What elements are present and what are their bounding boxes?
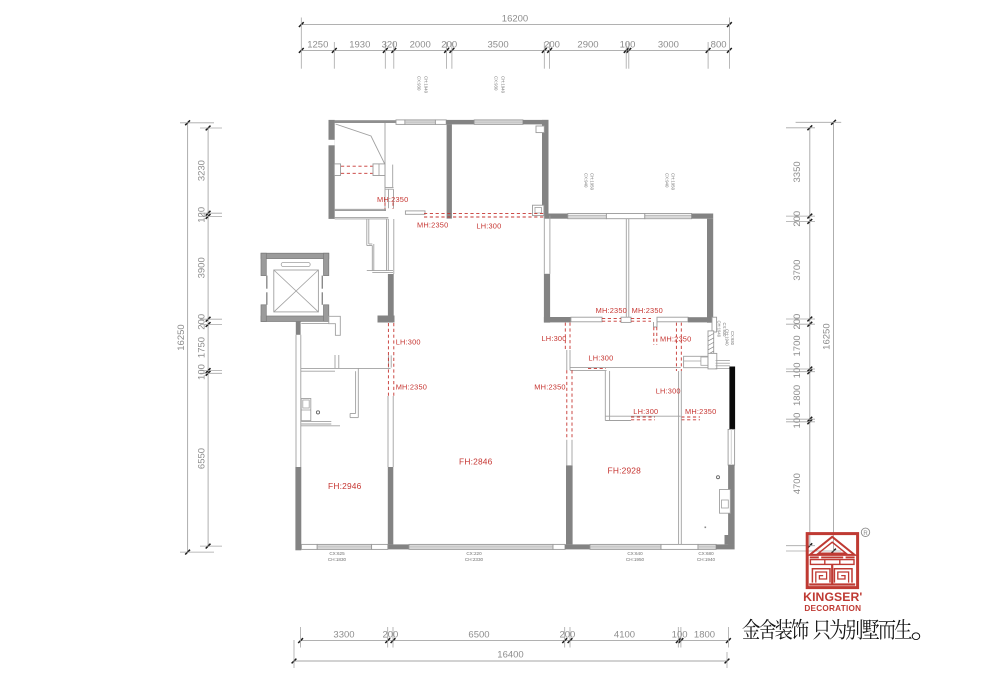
svg-text:200: 200: [792, 314, 803, 330]
svg-text:3300: 3300: [333, 629, 354, 640]
svg-text:FH:2928: FH:2928: [608, 466, 642, 476]
svg-text:CH:1940: CH:1940: [501, 76, 506, 94]
svg-text:LH:300: LH:300: [656, 387, 681, 396]
svg-text:CH:1830: CH:1830: [328, 557, 347, 562]
svg-text:CX:930: CX:930: [494, 76, 499, 91]
svg-text:CH:1950: CH:1950: [626, 557, 645, 562]
svg-text:FH:2946: FH:2946: [328, 481, 362, 491]
svg-text:3000: 3000: [658, 39, 679, 50]
svg-text:DECORATION: DECORATION: [804, 604, 861, 613]
svg-text:1700: 1700: [792, 335, 803, 356]
svg-text:MH:2350: MH:2350: [377, 195, 408, 204]
svg-text:200: 200: [559, 629, 575, 640]
svg-text:200: 200: [196, 314, 207, 330]
svg-text:800: 800: [711, 39, 727, 50]
svg-text:1800: 1800: [694, 629, 715, 640]
svg-text:6500: 6500: [468, 629, 489, 640]
svg-text:16200: 16200: [502, 13, 528, 24]
svg-text:1930: 1930: [349, 39, 370, 50]
svg-text:MH:2350: MH:2350: [660, 335, 691, 344]
svg-text:KINGSER': KINGSER': [803, 590, 862, 604]
svg-text:100: 100: [196, 364, 207, 380]
svg-text:LH:300: LH:300: [633, 407, 658, 416]
svg-text:LH:300: LH:300: [396, 338, 421, 347]
svg-text:100: 100: [620, 39, 636, 50]
svg-text:CX:940: CX:940: [584, 173, 589, 188]
svg-text:CH:1940: CH:1940: [725, 329, 730, 346]
svg-text:16250: 16250: [822, 323, 833, 349]
svg-text:2000: 2000: [410, 39, 431, 50]
svg-text:R: R: [863, 531, 868, 537]
svg-text:1750: 1750: [196, 337, 207, 358]
svg-text:6550: 6550: [196, 448, 207, 469]
svg-text:120: 120: [196, 207, 207, 223]
svg-text:16400: 16400: [497, 650, 523, 661]
svg-text:LH:300: LH:300: [542, 334, 567, 343]
svg-text:LH:300: LH:300: [588, 354, 613, 363]
svg-text:3230: 3230: [196, 160, 207, 181]
svg-text:MH:2350: MH:2350: [632, 306, 663, 315]
svg-text:3350: 3350: [792, 161, 803, 182]
svg-text:3700: 3700: [792, 260, 803, 281]
svg-text:CX:625: CX:625: [329, 551, 345, 556]
svg-text:CX:930: CX:930: [730, 331, 735, 346]
svg-text:200: 200: [544, 39, 560, 50]
svg-text:CH:1940: CH:1940: [697, 557, 716, 562]
svg-text:4700: 4700: [792, 473, 803, 494]
svg-text:MH:2350: MH:2350: [596, 306, 627, 315]
svg-text:3500: 3500: [488, 39, 509, 50]
svg-text:CH:1950: CH:1950: [590, 173, 595, 191]
svg-text:100: 100: [792, 362, 803, 378]
svg-text:CX:930: CX:930: [417, 76, 422, 91]
svg-text:CX:640: CX:640: [627, 551, 643, 556]
svg-text:LH:300: LH:300: [476, 222, 501, 231]
svg-text:320: 320: [382, 39, 398, 50]
svg-text:CX:940: CX:940: [665, 173, 670, 188]
svg-text:CH:1940: CH:1940: [424, 76, 429, 94]
svg-text:CH:1950: CH:1950: [671, 173, 676, 191]
svg-text:MH:2350: MH:2350: [396, 383, 427, 392]
svg-text:MH:2350: MH:2350: [534, 383, 565, 392]
svg-text:MH:2350: MH:2350: [417, 220, 448, 229]
svg-text:100: 100: [792, 413, 803, 429]
svg-text:200: 200: [382, 629, 398, 640]
svg-text:200: 200: [792, 211, 803, 227]
svg-text:MH:2350: MH:2350: [685, 407, 716, 416]
svg-text:200: 200: [441, 39, 457, 50]
svg-text:16250: 16250: [176, 324, 187, 350]
svg-text:100: 100: [672, 629, 688, 640]
svg-text:CH:2330: CH:2330: [465, 557, 484, 562]
svg-text:CX:680: CX:680: [698, 551, 714, 556]
svg-text:FH:2846: FH:2846: [459, 457, 493, 467]
svg-text:4100: 4100: [614, 629, 635, 640]
svg-text:1250: 1250: [307, 39, 328, 50]
svg-text:CH:1940: CH:1940: [717, 321, 722, 338]
svg-text:CX:220: CX:220: [466, 551, 482, 556]
svg-text:3900: 3900: [196, 257, 207, 278]
svg-text:1800: 1800: [792, 385, 803, 406]
svg-text:2900: 2900: [577, 39, 598, 50]
